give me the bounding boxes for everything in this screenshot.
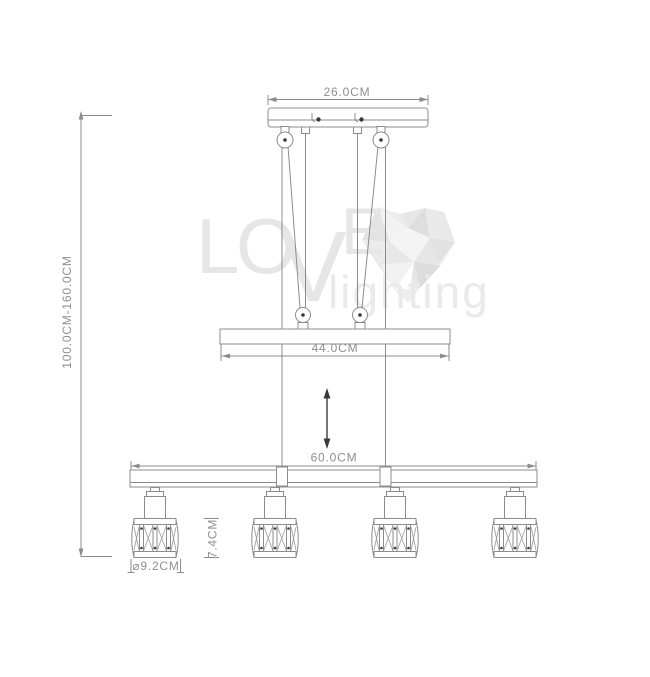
lamp-head-4 xyxy=(492,488,539,558)
dimension-label-canopy-width: 26.0CM xyxy=(324,85,371,99)
watermark-letter-e: E xyxy=(341,194,385,268)
screw-dot xyxy=(316,117,320,121)
dimension-label-shade-height: 7.4CM xyxy=(206,519,220,558)
dimension-label-bottom-bar-width: 60.0CM xyxy=(311,451,358,465)
watermark-letter-l: L xyxy=(196,202,239,290)
dimension-label-shade-diameter: ⌀9.2CM xyxy=(132,559,179,573)
screw-dot xyxy=(359,117,363,121)
canopy-body xyxy=(268,108,428,127)
lamp-head-3 xyxy=(372,488,419,558)
dimension-shade-height: 7.4CM xyxy=(204,519,220,559)
ceiling-canopy xyxy=(268,108,428,127)
pulley-axle-dot xyxy=(358,313,362,317)
dimension-canopy-width: 26.0CM xyxy=(268,85,428,105)
arrow-down-head xyxy=(324,439,331,450)
pulley-axle-dot xyxy=(301,313,305,317)
lamp-head-1 xyxy=(132,488,179,558)
lower-pulley-left xyxy=(296,308,311,330)
bottom-bar-body xyxy=(130,470,537,487)
pulley-axle-dot xyxy=(283,138,287,142)
cord-anchor-left xyxy=(302,127,310,134)
lower-pulley-right xyxy=(353,308,368,330)
cord-anchor-right xyxy=(354,127,362,134)
technical-drawing-canvas: L O V E lighting xyxy=(0,0,650,677)
dimension-label-crossbar-width: 44.0CM xyxy=(312,341,359,355)
height-adjust-arrow xyxy=(324,388,331,449)
cable-gripper-left xyxy=(277,467,288,486)
dimension-shade-diameter: ⌀9.2CM xyxy=(128,559,185,573)
dimension-overall-height: 100.0CM-160.0CM xyxy=(60,111,112,557)
dimension-bottom-bar-width: 60.0CM xyxy=(131,451,536,471)
watermark-subtitle: lighting xyxy=(328,266,490,318)
watermark: L O V E lighting xyxy=(196,194,490,323)
lamp-head-2 xyxy=(252,488,299,558)
cable-gripper-right xyxy=(380,467,391,486)
upper-pulley-left xyxy=(277,127,293,149)
dimension-label-overall-height: 100.0CM-160.0CM xyxy=(60,255,74,368)
pulley-axle-dot xyxy=(379,138,383,142)
upper-pulley-right xyxy=(373,127,389,149)
arrow-up-head xyxy=(324,388,331,399)
bottom-bar xyxy=(130,467,537,487)
